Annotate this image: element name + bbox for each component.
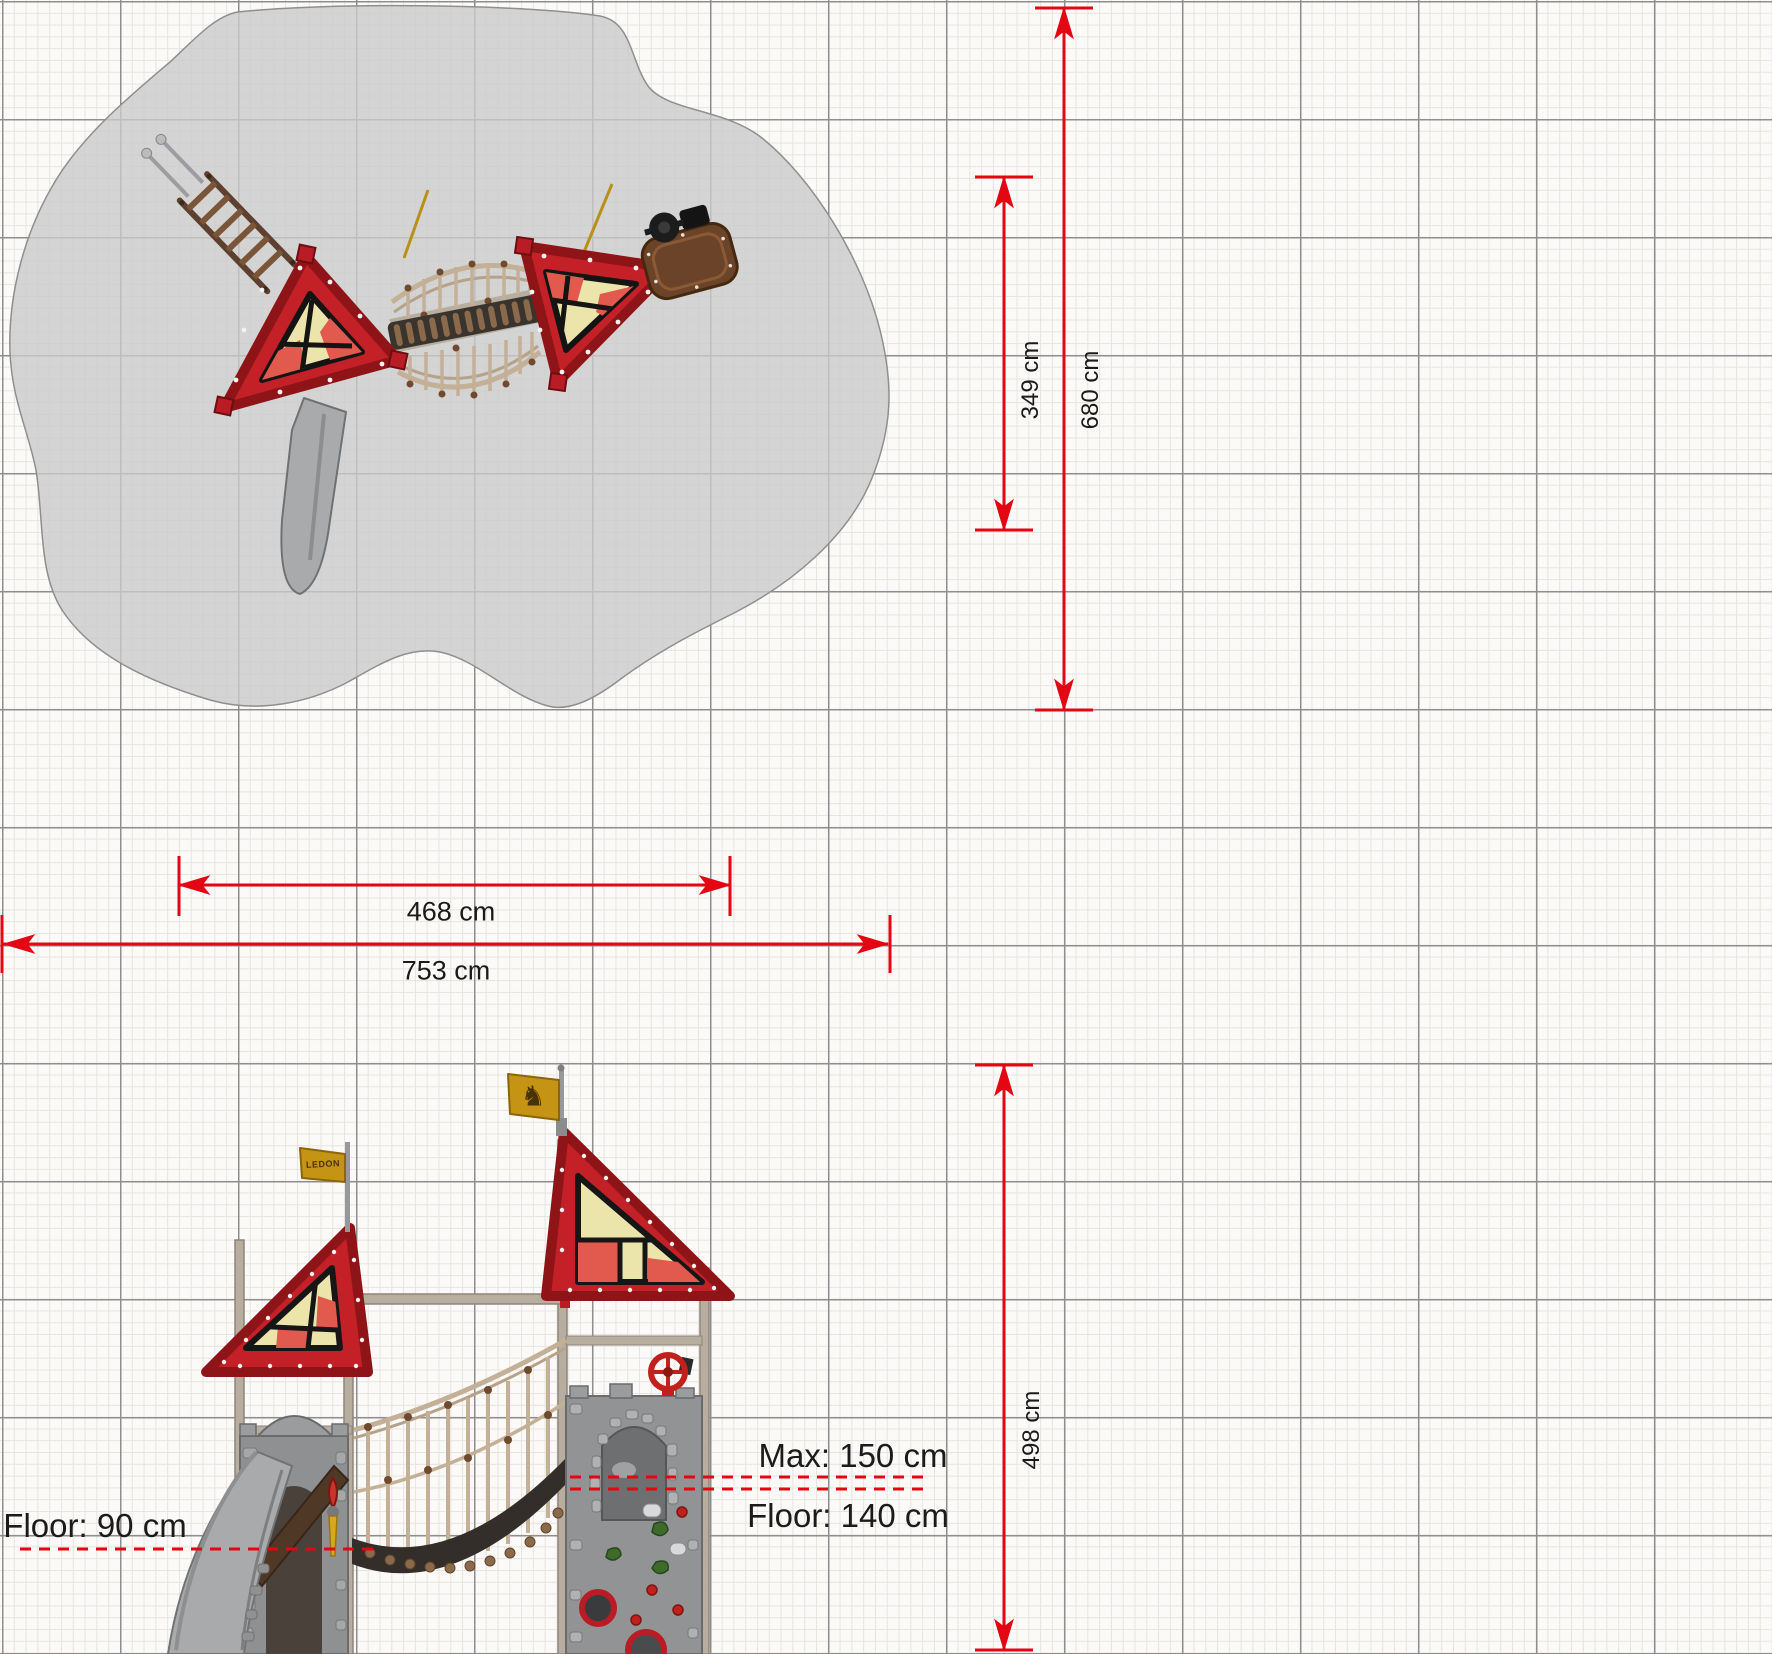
dim-label-468: 468 cm	[407, 897, 496, 928]
annotation-max-height: Max: 150 cm	[759, 1437, 948, 1475]
porthole-1	[582, 1592, 614, 1624]
plan-view	[10, 6, 889, 708]
tower-roof-left	[206, 1228, 368, 1372]
porthole-2	[628, 1632, 664, 1654]
dim-label-349: 349 cm	[1017, 341, 1045, 420]
dim-label-498: 498 cm	[1018, 1391, 1046, 1470]
rope-bridge-elevation	[352, 1340, 566, 1573]
safety-zone	[10, 6, 889, 708]
bridge-walkway	[352, 1458, 566, 1573]
annotation-floor-140: Floor: 140 cm	[747, 1497, 949, 1535]
knight-emblem-icon: ♞	[520, 1080, 545, 1113]
annotation-floor-90: Floor: 90 cm	[3, 1507, 186, 1545]
tower-roof-right	[546, 1132, 730, 1296]
dim-label-680: 680 cm	[1077, 351, 1105, 430]
flag-left	[300, 1142, 350, 1232]
dim-label-753: 753 cm	[402, 956, 491, 987]
dimension-498	[975, 1065, 1033, 1650]
top-bar	[352, 1294, 568, 1304]
castle-panel	[566, 1384, 702, 1654]
elevation-view	[168, 1065, 730, 1654]
drawing-svg	[0, 0, 1772, 1654]
deck-rail-right	[566, 1336, 702, 1345]
drawing-canvas: 349 cm 680 cm 468 cm 753 cm 498 cm Max: …	[0, 0, 1772, 1654]
flag-brand-label: LEDON	[306, 1158, 340, 1170]
